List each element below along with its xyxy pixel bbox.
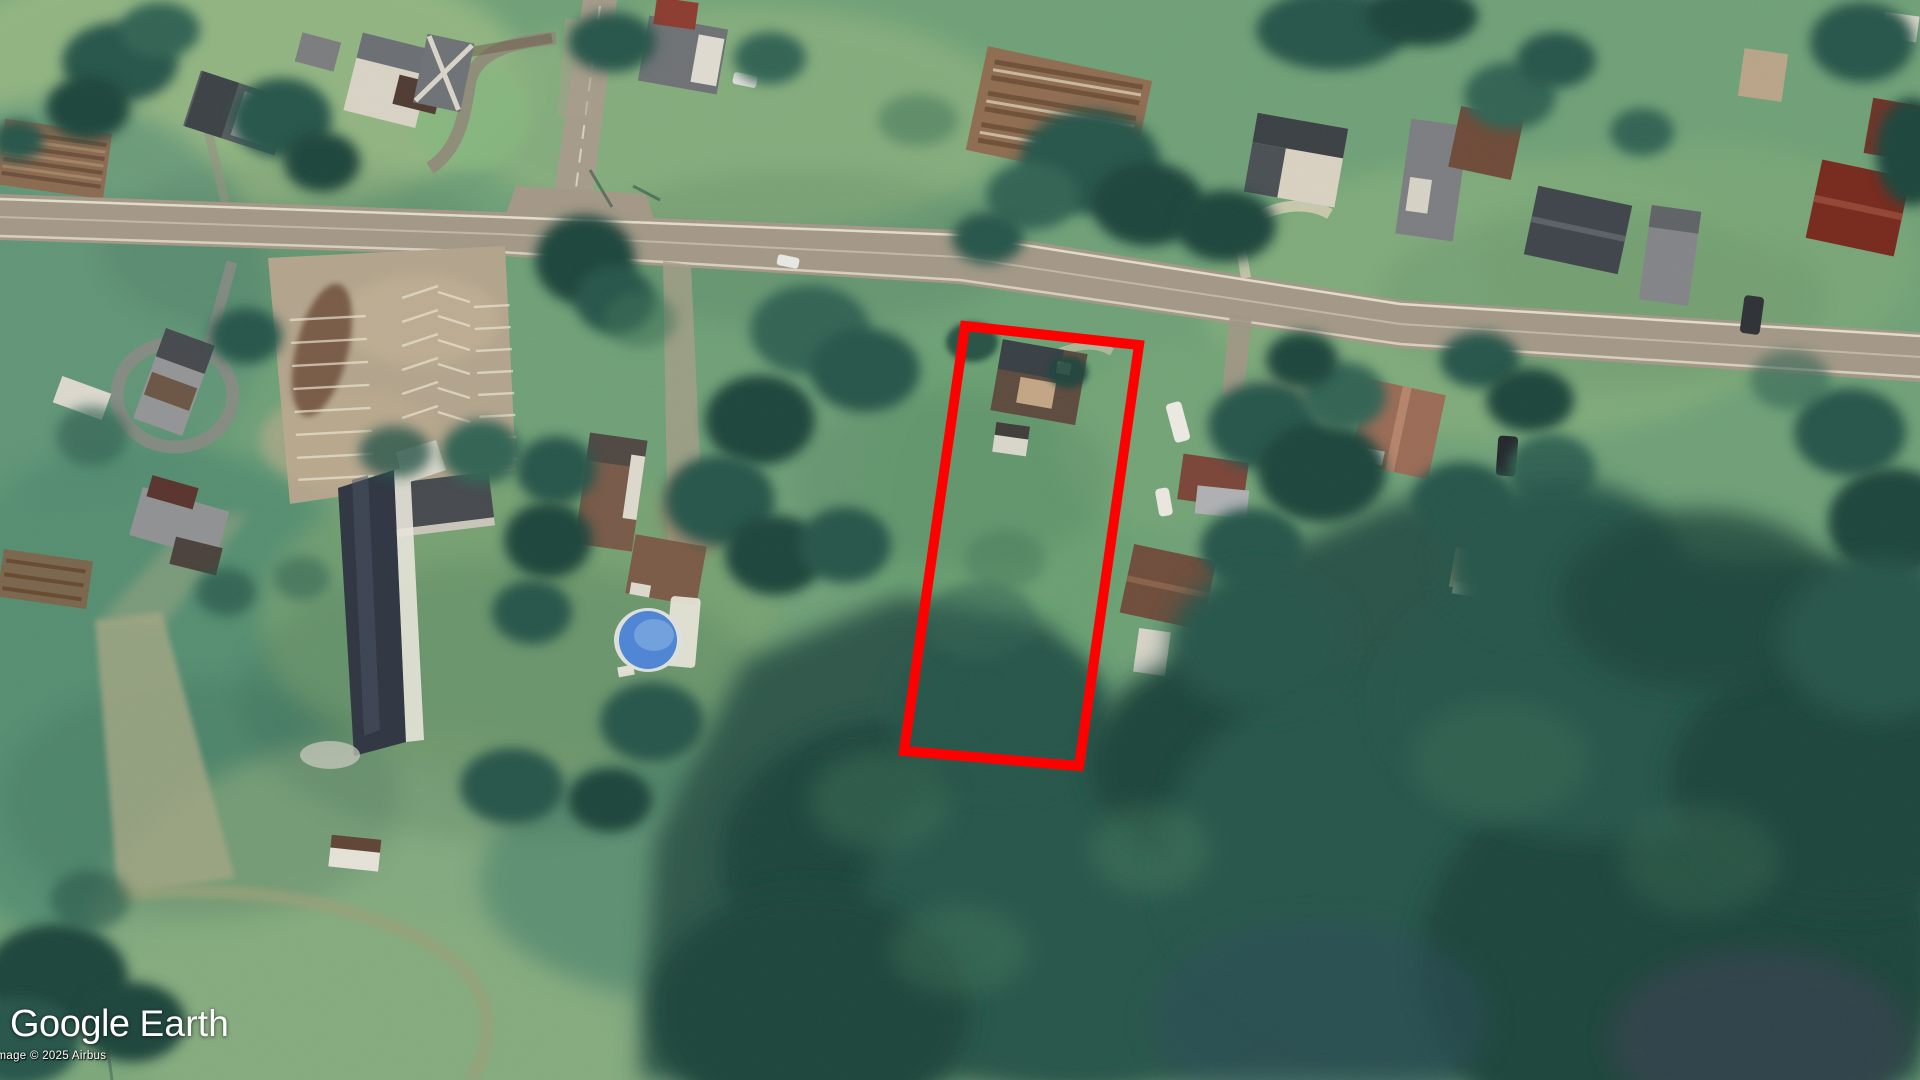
google-earth-logo: Google Earth	[10, 1003, 229, 1046]
satellite-imagery[interactable]	[0, 0, 1920, 1080]
logo-earth-text: Earth	[140, 1003, 229, 1045]
imagery-attribution: Image © 2025 Airbus	[0, 1050, 106, 1062]
logo-google-text: Google	[10, 1003, 130, 1046]
image-grain	[0, 0, 1920, 1080]
google-earth-viewport[interactable]: Google Earth Image © 2025 Airbus	[0, 0, 1920, 1080]
